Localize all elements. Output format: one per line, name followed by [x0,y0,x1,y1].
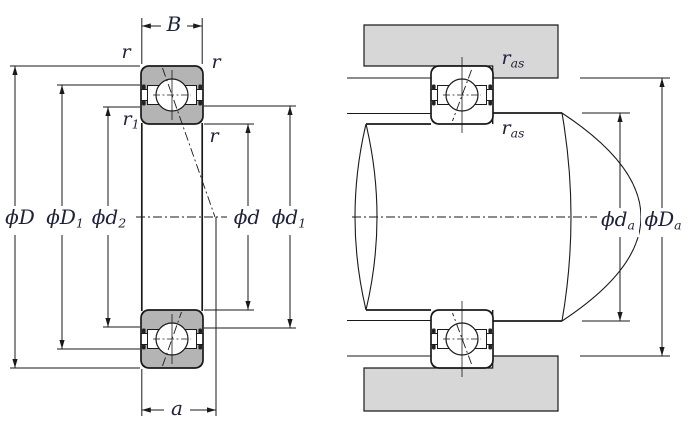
dim-label-r1-text: r [122,108,131,130]
dim-label-phi-D1-sub: 1 [76,216,84,231]
dim-label-B-text: B [167,12,182,36]
dim-label-a-text: a [171,396,183,420]
dim-label-phi-D1-text: ϕD [46,205,76,229]
dim-label-ras-bottom: ras [495,117,531,145]
dim-label-phi-da-text: ϕd [601,207,627,231]
dim-label-phi-d2-text: ϕd [92,205,118,229]
dim-label-phi-da: ϕda [597,208,639,237]
dim-label-r-top-right: r [205,51,227,79]
dim-label-ras-top: ras [495,47,531,75]
dim-label-r1: r1 [118,108,144,136]
dim-label-ras-top-sub: as [511,56,525,71]
dim-label-r-mid-right-text: r [209,125,218,147]
dim-label-phi-d1-text: ϕd [272,205,298,229]
dim-label-r-top-right-text: r [211,51,220,73]
dim-label-phi-d2: ϕd2 [88,206,130,235]
dim-label-phi-D-text: ϕD [5,205,35,229]
dim-label-phi-Da-sub: a [674,218,681,233]
dim-label-phi-d1-sub: 1 [298,216,306,231]
dim-label-ras-top-text: r [502,47,511,69]
dim-label-phi-D1: ϕD1 [43,206,87,235]
dim-label-ras-bottom-text: r [502,117,511,139]
dim-label-phi-d2-sub: 2 [118,216,126,231]
dim-label-r-mid-right: r [203,125,225,153]
dim-label-phi-da-sub: a [627,218,634,233]
dim-label-r1-sub: 1 [132,117,140,132]
dim-label-phi-Da: ϕDa [641,208,685,237]
dim-label-ras-bottom-sub: as [511,126,525,141]
dim-label-B: B [161,13,187,42]
dim-label-phi-D: ϕD [0,206,40,235]
dim-label-phi-d: ϕd [227,206,267,235]
bearing-dimension-figure: B r r r r1 ϕD ϕD1 ϕd2 ϕd ϕd1 a ras ras ϕ… [0,0,695,433]
dim-label-r-top-left: r [115,41,137,69]
dim-label-phi-Da-text: ϕD [644,207,674,231]
dim-label-phi-d-text: ϕd [234,205,260,229]
dim-label-a: a [164,397,190,426]
dim-label-phi-d1: ϕd1 [267,206,311,235]
dim-label-r-top-left-text: r [121,41,130,63]
